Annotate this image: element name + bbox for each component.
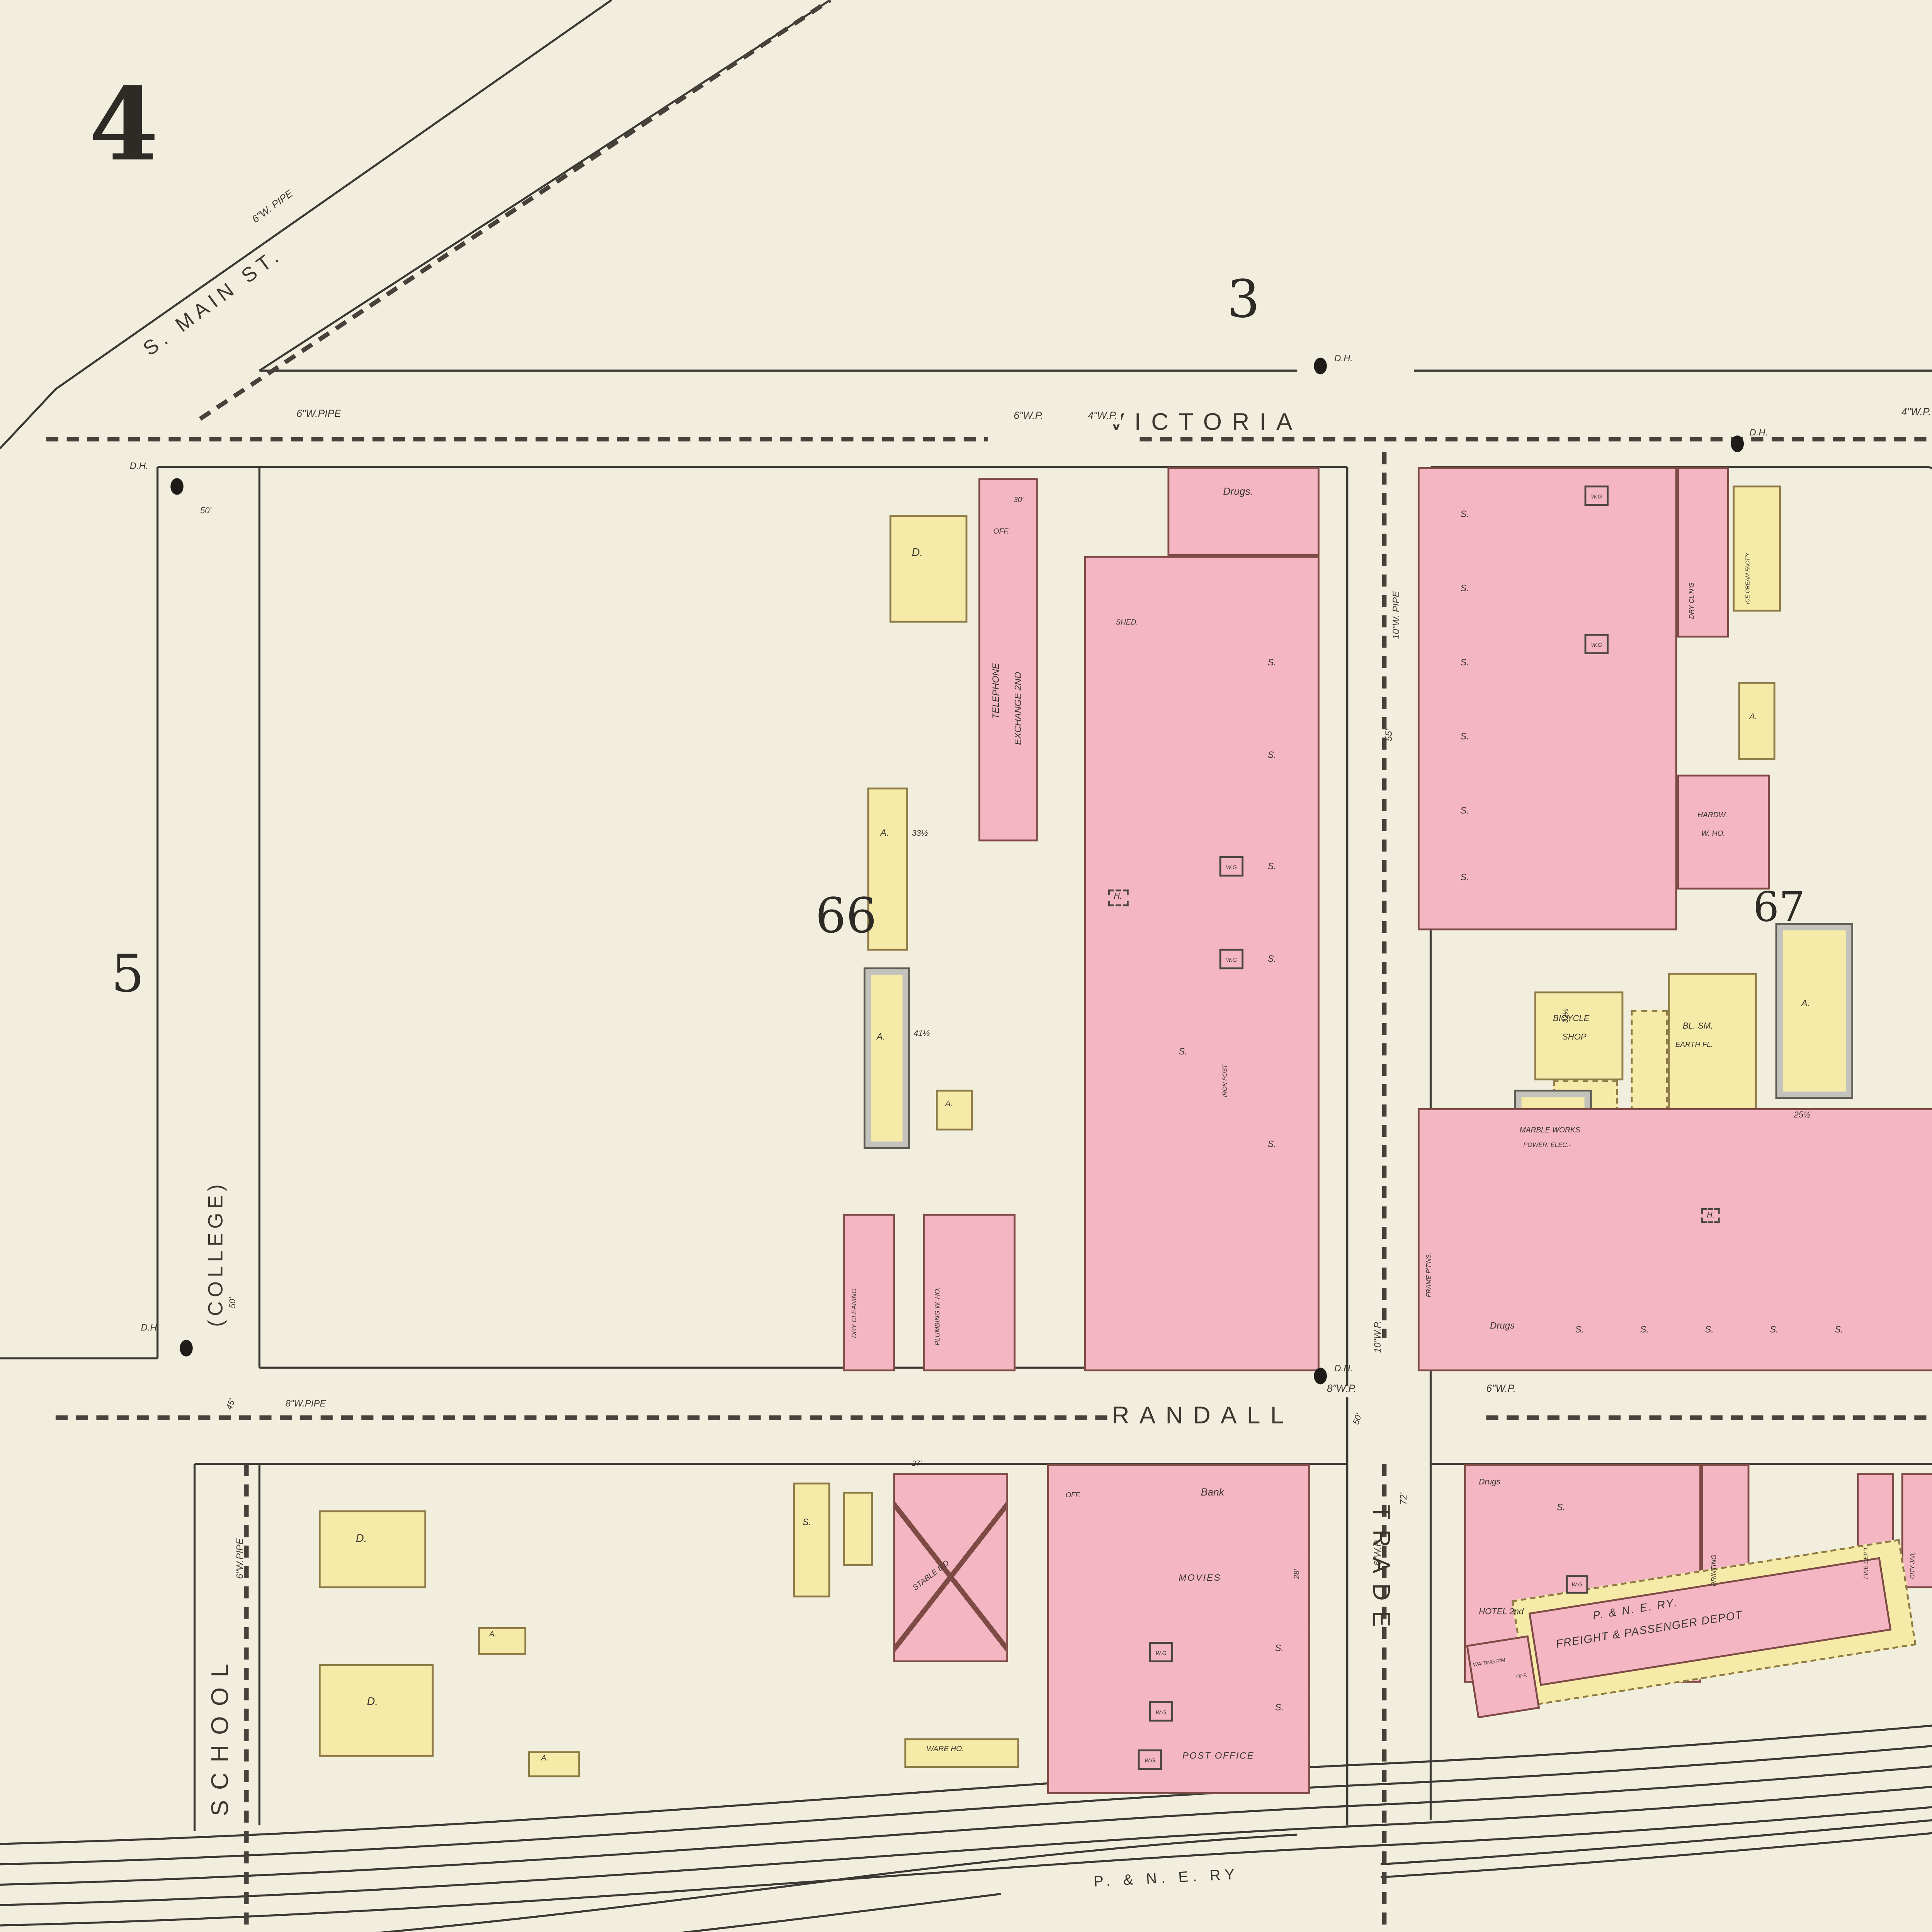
store-label: S. bbox=[1835, 1327, 1844, 1336]
hydrant-label: D.H. bbox=[130, 463, 148, 473]
block-number-67: 67 bbox=[1753, 889, 1805, 930]
sanborn-map-sheet: NS WAITING R'M OFF. P. & N. E. R bbox=[0, 0, 1932, 1932]
blacksmith-label-2: EARTH FL. bbox=[1675, 1041, 1713, 1049]
store-label: S. bbox=[1460, 586, 1469, 595]
shed-label: SHED. bbox=[1116, 619, 1138, 626]
city-jail-label: CITY JAIL bbox=[1911, 1552, 1917, 1579]
pipe-label: 4"W.P. bbox=[1898, 410, 1932, 420]
bank-label: Bank bbox=[1201, 1490, 1224, 1500]
store-label: S. bbox=[1267, 752, 1276, 762]
post-office-label: POST OFFICE bbox=[1182, 1753, 1254, 1762]
fire-dept-label: FIRE DEP'T. bbox=[1864, 1546, 1870, 1579]
pipe-label: 6"W.PIPE bbox=[237, 1538, 247, 1579]
hydrant-label: D.H. bbox=[1334, 356, 1353, 365]
outbuilding bbox=[843, 1492, 873, 1566]
store-label: S. bbox=[1557, 1505, 1566, 1514]
auto-house-label: A. bbox=[945, 1101, 953, 1109]
office-label: OFF. bbox=[993, 528, 1009, 536]
store-label: S. bbox=[1575, 1327, 1584, 1336]
store-label: S. bbox=[1267, 1141, 1276, 1151]
movies-label: MOVIES bbox=[1179, 1575, 1221, 1585]
dim-label: 50' bbox=[200, 508, 211, 516]
stable-building bbox=[893, 1473, 1008, 1662]
store-label: S. bbox=[1705, 1327, 1714, 1336]
dim-label: 55' bbox=[1386, 729, 1395, 741]
street-randall: RANDALL bbox=[1108, 1403, 1298, 1427]
pipe-label: 8"W.P. bbox=[1323, 1386, 1360, 1396]
water-closet-box: W.G bbox=[1585, 486, 1609, 506]
water-closet-box: W.G bbox=[1219, 856, 1243, 877]
office-label: OFF. bbox=[1066, 1494, 1081, 1501]
store-label: S. bbox=[1275, 1646, 1284, 1655]
store-label: S. bbox=[1640, 1327, 1649, 1336]
store-label: S. bbox=[1267, 864, 1276, 873]
water-closet-box: W.G bbox=[1566, 1575, 1588, 1594]
hydrant-dot bbox=[170, 478, 184, 495]
pipe-label: 10"W. PIPE bbox=[1394, 591, 1403, 639]
street-college: (COLLEGE) bbox=[207, 1180, 228, 1327]
hydrant-label: D.H. bbox=[141, 1325, 159, 1334]
pipe-label: 8"W.PIPE bbox=[282, 1401, 330, 1410]
auto-house-label: A. bbox=[877, 1034, 886, 1043]
bicycle-label-1: BICYCLE bbox=[1553, 1015, 1589, 1024]
store-label: S. bbox=[1460, 660, 1469, 669]
store-label: S. bbox=[1267, 956, 1276, 966]
outbuilding bbox=[478, 1627, 526, 1655]
water-closet-box: W.G bbox=[1149, 1701, 1173, 1722]
drugs-label: Drugs bbox=[1490, 1323, 1515, 1332]
block-number-3: 3 bbox=[1227, 274, 1260, 326]
marble-works-label-2: POWER: ELEC:- bbox=[1523, 1143, 1571, 1150]
outbuilding bbox=[528, 1751, 580, 1777]
pipe-label: 6"W.P. bbox=[1010, 413, 1047, 423]
store-building bbox=[793, 1483, 830, 1597]
hotel-label: HOTEL 2nd bbox=[1479, 1609, 1524, 1617]
iron-post-note: IRON POST bbox=[1223, 1065, 1229, 1097]
telephone-label-2: EXCHANGE 2ND bbox=[1015, 672, 1025, 745]
hardware-label-2: W. HO. bbox=[1701, 830, 1725, 838]
pipe-label: 6"W.PIPE bbox=[293, 412, 345, 422]
store-label: S. bbox=[1460, 875, 1469, 884]
frame-partitions-note: FRAME P'T'NS. bbox=[1427, 1253, 1433, 1298]
auto-house-label: A. bbox=[880, 830, 889, 840]
map-canvas: NS WAITING R'M OFF. P. & N. E. R bbox=[0, 0, 1932, 1932]
water-closet-box: W.G bbox=[1149, 1642, 1173, 1662]
store-label: S. bbox=[1275, 1705, 1284, 1714]
pipe-label: 4"W.P. bbox=[1084, 413, 1121, 423]
dry-cleaning-label: DRY CLEANING bbox=[852, 1288, 859, 1338]
block-number-5: 5 bbox=[111, 949, 145, 1001]
dim-label: 30' bbox=[1014, 497, 1023, 504]
street-trade: TRADE bbox=[1369, 1505, 1393, 1637]
auto-house-label: A. bbox=[489, 1631, 497, 1638]
auto-house-label: A. bbox=[1801, 1001, 1810, 1010]
warehouse-label: WARE HO. bbox=[927, 1746, 964, 1753]
dwelling-label: D. bbox=[912, 549, 923, 560]
drugs-label: Drugs bbox=[1479, 1479, 1500, 1487]
dim-label: 50' bbox=[230, 1297, 238, 1308]
auto-house-a bbox=[864, 968, 910, 1149]
dwelling bbox=[889, 515, 967, 622]
dwelling bbox=[319, 1510, 426, 1588]
blacksmith-label-1: BL. SM. bbox=[1683, 1023, 1713, 1031]
street-school: SCHOOL bbox=[207, 1654, 231, 1816]
water-closet-box: W.G bbox=[1138, 1749, 1162, 1770]
dim-label: 27' bbox=[912, 1460, 922, 1468]
hoist-box: H. bbox=[1701, 1208, 1720, 1223]
hydrant-dot bbox=[1314, 1367, 1327, 1384]
street-victoria: VICTORIA bbox=[1104, 410, 1306, 434]
pipe-label: 6"W.P. bbox=[1375, 1539, 1384, 1566]
telephone-label-1: TELEPHONE bbox=[993, 663, 1003, 719]
hydrant-label: D.H. bbox=[1334, 1366, 1353, 1375]
dim-label: 28' bbox=[1294, 1569, 1301, 1579]
water-closet-box: W.G bbox=[1219, 949, 1243, 969]
dwelling bbox=[319, 1664, 434, 1757]
store-label: S. bbox=[1460, 734, 1469, 743]
waiting-room bbox=[1466, 1635, 1540, 1718]
store-label: S. bbox=[803, 1520, 811, 1529]
water-closet-box: W.G bbox=[1585, 634, 1609, 654]
hydrant-dot bbox=[180, 1340, 193, 1357]
auto-house-a bbox=[936, 1090, 973, 1131]
dim-label: 33½ bbox=[912, 830, 928, 839]
auto-house-a bbox=[1776, 923, 1853, 1099]
printing-label: PRINTING bbox=[1713, 1554, 1719, 1586]
railroad-tracks bbox=[0, 1677, 1932, 1932]
store-label: S. bbox=[1460, 808, 1469, 817]
store-label: S. bbox=[1179, 1049, 1187, 1058]
dim-label: 25½ bbox=[1794, 1112, 1811, 1121]
hoist-box: H. bbox=[1108, 889, 1128, 905]
dim-label: 72' bbox=[1401, 1493, 1410, 1505]
hydrant-label: D.H. bbox=[1749, 430, 1768, 439]
pipe-label: 10"W.P. bbox=[1375, 1321, 1384, 1353]
ice-cream-factory bbox=[1733, 486, 1781, 612]
dim-label: 32½ bbox=[1562, 1009, 1570, 1023]
drugs-store-building bbox=[1167, 467, 1319, 556]
auto-house-label: A. bbox=[541, 1755, 548, 1763]
sheet-number-left: 4 bbox=[89, 74, 158, 174]
hardware-label-1: HARDW. bbox=[1697, 812, 1727, 819]
ice-cream-label: ICE CREAM FACT'Y bbox=[1746, 553, 1751, 604]
hydrant-dot bbox=[1731, 435, 1744, 452]
auto-house-label: A. bbox=[1749, 713, 1757, 722]
outbuilding bbox=[1631, 1010, 1668, 1112]
bicycle-label-2: SHOP bbox=[1562, 1034, 1586, 1043]
drugs-label: Drugs. bbox=[1223, 489, 1253, 499]
marble-works-label-1: MARBLE WORKS bbox=[1520, 1127, 1580, 1134]
store-row-block3 bbox=[1418, 467, 1677, 930]
dwelling-label: D. bbox=[356, 1534, 367, 1546]
pipe-label: 6"W.P. bbox=[1483, 1386, 1520, 1396]
store-label: S. bbox=[1460, 512, 1469, 521]
bank-movies-postoffice-block bbox=[1047, 1464, 1310, 1794]
store-label: S. bbox=[1770, 1327, 1779, 1336]
hydrant-dot bbox=[1314, 358, 1327, 374]
plumbing-label: PLUMBING W. HO. bbox=[936, 1287, 942, 1345]
block-number-66: 66 bbox=[815, 893, 877, 942]
store-row-block66 bbox=[1084, 556, 1320, 1371]
dwelling-label: D. bbox=[367, 1697, 378, 1709]
dry-cleaning-strip-label: DRY CL'N'G bbox=[1690, 582, 1697, 619]
dry-cleaning-strip bbox=[1677, 467, 1729, 638]
store-label: S. bbox=[1267, 660, 1276, 669]
dim-label: 41½ bbox=[913, 1031, 930, 1039]
